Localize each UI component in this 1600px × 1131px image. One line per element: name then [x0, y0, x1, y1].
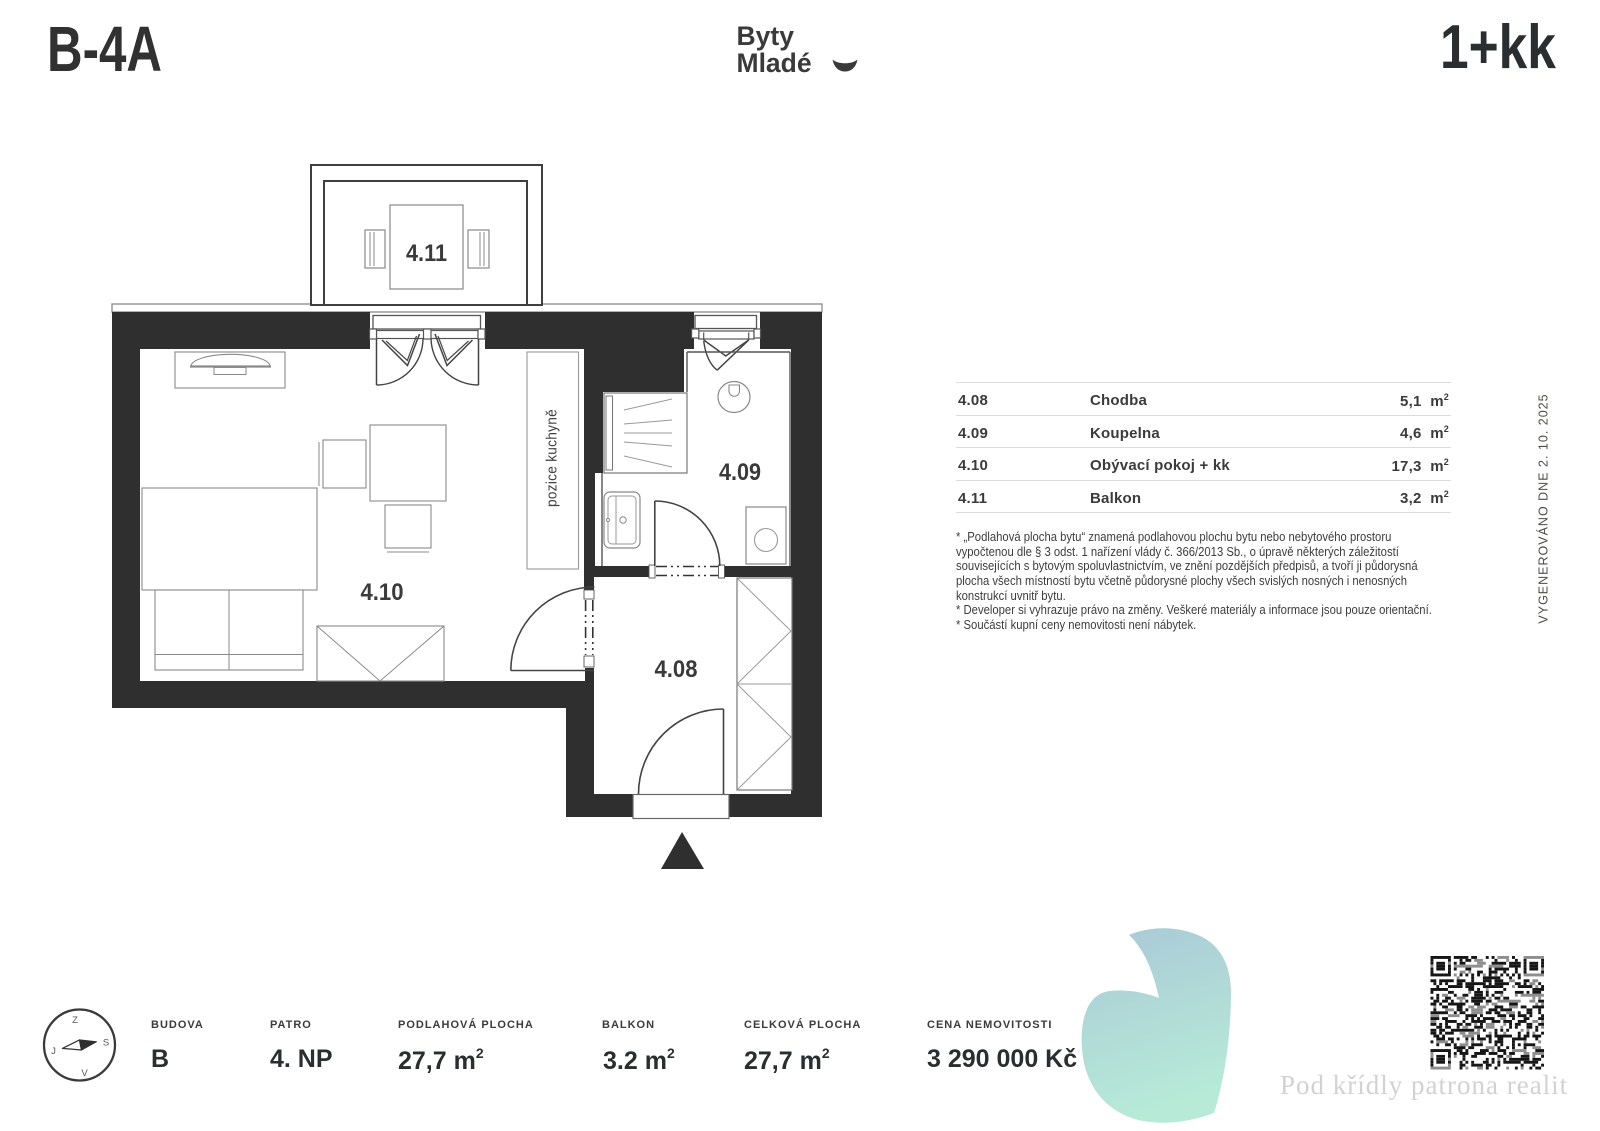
- svg-text:4.11: 4.11: [406, 240, 447, 267]
- svg-text:4.09: 4.09: [719, 459, 761, 486]
- svg-text:4.08: 4.08: [655, 656, 698, 683]
- svg-text:J: J: [51, 1046, 56, 1057]
- svg-text:Z: Z: [72, 1015, 78, 1026]
- svg-text:S: S: [103, 1038, 109, 1049]
- svg-text:V: V: [81, 1068, 88, 1079]
- svg-text:pozice kuchyně: pozice kuchyně: [545, 409, 561, 507]
- svg-text:4.10: 4.10: [361, 579, 404, 606]
